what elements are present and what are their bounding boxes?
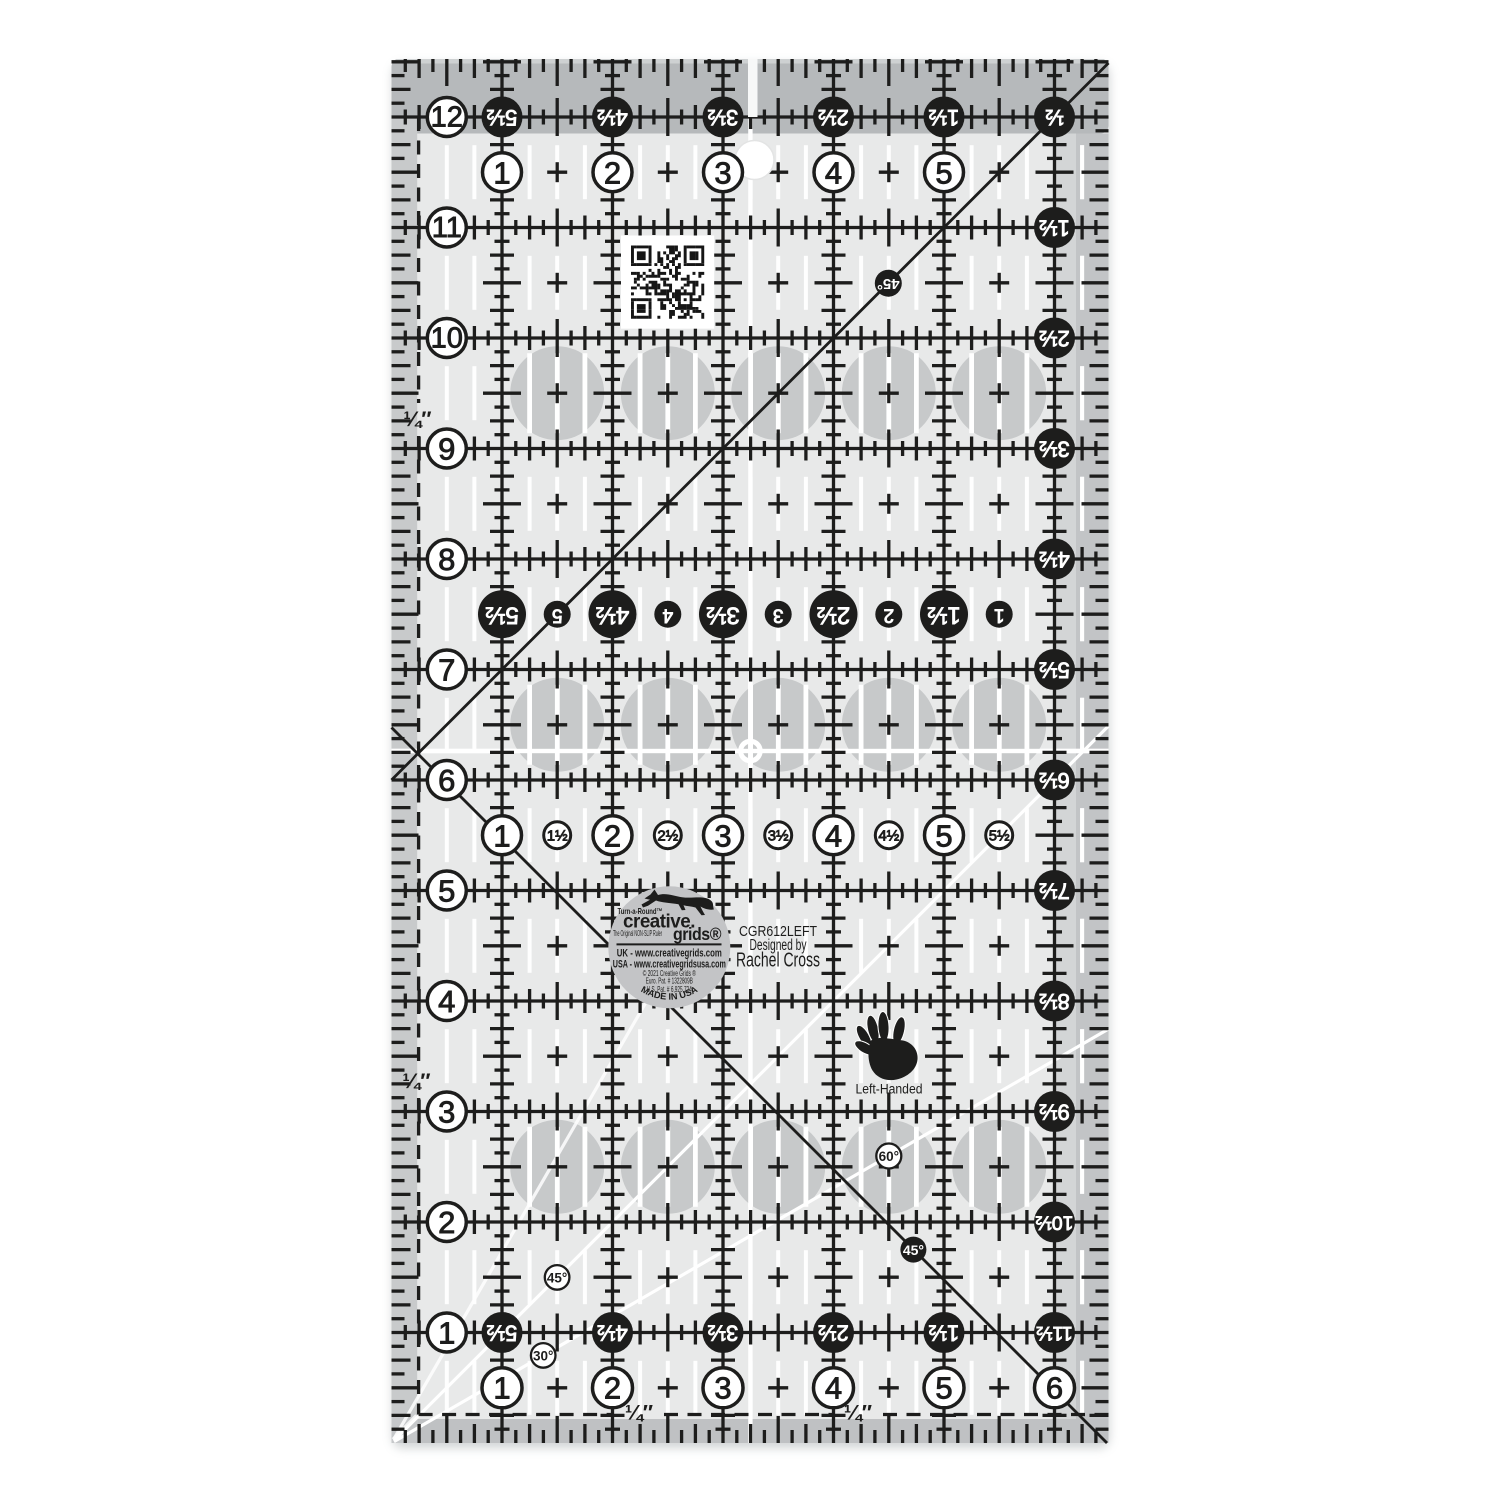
svg-text:1½: 1½: [1039, 216, 1070, 241]
svg-text:4½: 4½: [597, 1321, 628, 1346]
svg-text:6: 6: [438, 763, 455, 798]
svg-text:10: 10: [431, 323, 463, 355]
svg-text:45°: 45°: [877, 275, 900, 292]
svg-text:3½: 3½: [1039, 437, 1070, 462]
svg-text:3½: 3½: [708, 1321, 739, 1346]
svg-text:2½: 2½: [818, 1321, 849, 1346]
svg-text:8½: 8½: [1039, 989, 1070, 1014]
svg-text:10½: 10½: [1036, 1212, 1074, 1234]
svg-text:1½: 1½: [547, 827, 568, 844]
svg-text:2: 2: [438, 1205, 455, 1240]
svg-text:11: 11: [432, 212, 462, 244]
svg-text:8: 8: [438, 542, 455, 577]
svg-text:2: 2: [884, 604, 895, 625]
svg-text:6½: 6½: [1039, 768, 1070, 793]
svg-text:4½: 4½: [878, 827, 899, 844]
svg-text:1½: 1½: [929, 1321, 960, 1346]
svg-text:12: 12: [431, 102, 463, 134]
svg-text:¼″: ¼″: [844, 1401, 872, 1425]
svg-text:1: 1: [493, 818, 510, 853]
svg-text:5: 5: [935, 818, 952, 853]
svg-text:3: 3: [714, 155, 731, 190]
svg-text:2½: 2½: [657, 827, 678, 844]
svg-text:1½: 1½: [927, 601, 960, 628]
svg-text:3½: 3½: [768, 827, 789, 844]
svg-text:5: 5: [935, 155, 952, 190]
svg-text:The Original NON-SLIP Ruler: The Original NON-SLIP Ruler: [613, 929, 662, 938]
svg-text:6: 6: [1046, 1371, 1063, 1406]
svg-text:2: 2: [604, 155, 621, 190]
svg-text:7: 7: [438, 653, 455, 688]
svg-text:60°: 60°: [879, 1149, 899, 1164]
svg-text:9½: 9½: [1039, 1100, 1070, 1125]
svg-text:1: 1: [493, 155, 510, 190]
svg-text:3½: 3½: [706, 601, 739, 628]
svg-text:5: 5: [552, 604, 563, 625]
svg-text:4½: 4½: [596, 601, 629, 628]
svg-text:4½: 4½: [597, 105, 628, 130]
svg-text:45°: 45°: [547, 1270, 567, 1285]
svg-text:4: 4: [825, 155, 842, 190]
svg-text:¼″: ¼″: [403, 407, 431, 431]
svg-text:¼″: ¼″: [625, 1401, 653, 1425]
svg-text:grids®: grids®: [673, 924, 722, 944]
svg-text:5½: 5½: [485, 601, 518, 628]
svg-text:4: 4: [662, 604, 673, 625]
svg-text:2: 2: [604, 818, 621, 853]
svg-text:3: 3: [773, 604, 784, 625]
svg-text:3: 3: [438, 1095, 455, 1130]
svg-text:1: 1: [493, 1371, 510, 1406]
svg-text:5½: 5½: [1039, 658, 1070, 683]
svg-text:2½: 2½: [1039, 326, 1070, 351]
svg-text:30°: 30°: [533, 1348, 553, 1363]
svg-text:5½: 5½: [487, 105, 518, 130]
svg-text:2: 2: [604, 1371, 621, 1406]
svg-text:3: 3: [714, 818, 731, 853]
svg-text:3: 3: [714, 1371, 731, 1406]
svg-text:9: 9: [438, 432, 455, 467]
svg-text:5½: 5½: [487, 1321, 518, 1346]
svg-text:2½: 2½: [818, 105, 849, 130]
svg-text:45°: 45°: [903, 1242, 924, 1258]
svg-text:½: ½: [1045, 105, 1063, 130]
svg-text:Left-Handed: Left-Handed: [856, 1082, 923, 1098]
svg-text:4: 4: [825, 1371, 842, 1406]
svg-text:5: 5: [935, 1371, 952, 1406]
svg-text:¼″: ¼″: [402, 1069, 430, 1093]
svg-text:5: 5: [438, 874, 455, 909]
svg-text:1: 1: [994, 604, 1005, 625]
svg-text:1: 1: [438, 1316, 455, 1351]
svg-text:4: 4: [438, 984, 455, 1019]
svg-text:2½: 2½: [817, 601, 850, 628]
svg-text:7½: 7½: [1039, 879, 1070, 904]
svg-text:5½: 5½: [989, 827, 1010, 844]
svg-text:Rachel Cross: Rachel Cross: [736, 950, 820, 972]
svg-text:1½: 1½: [929, 105, 960, 130]
svg-text:11½: 11½: [1036, 1322, 1073, 1344]
svg-text:4: 4: [825, 818, 842, 853]
svg-text:3½: 3½: [708, 105, 739, 130]
svg-text:4½: 4½: [1039, 547, 1070, 572]
